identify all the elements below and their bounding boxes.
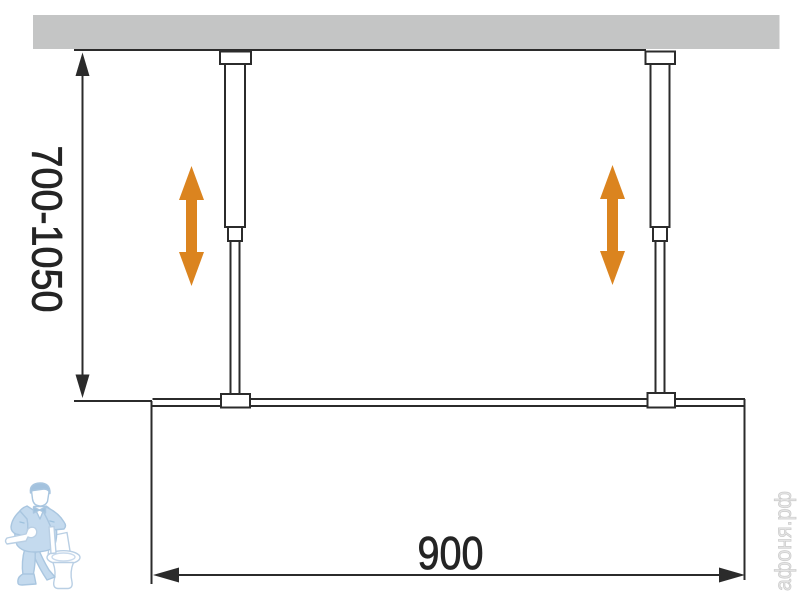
svg-text:афоня.рф: афоня.рф — [770, 491, 796, 591]
svg-text:700-1050: 700-1050 — [23, 146, 71, 313]
svg-text:900: 900 — [418, 527, 484, 579]
